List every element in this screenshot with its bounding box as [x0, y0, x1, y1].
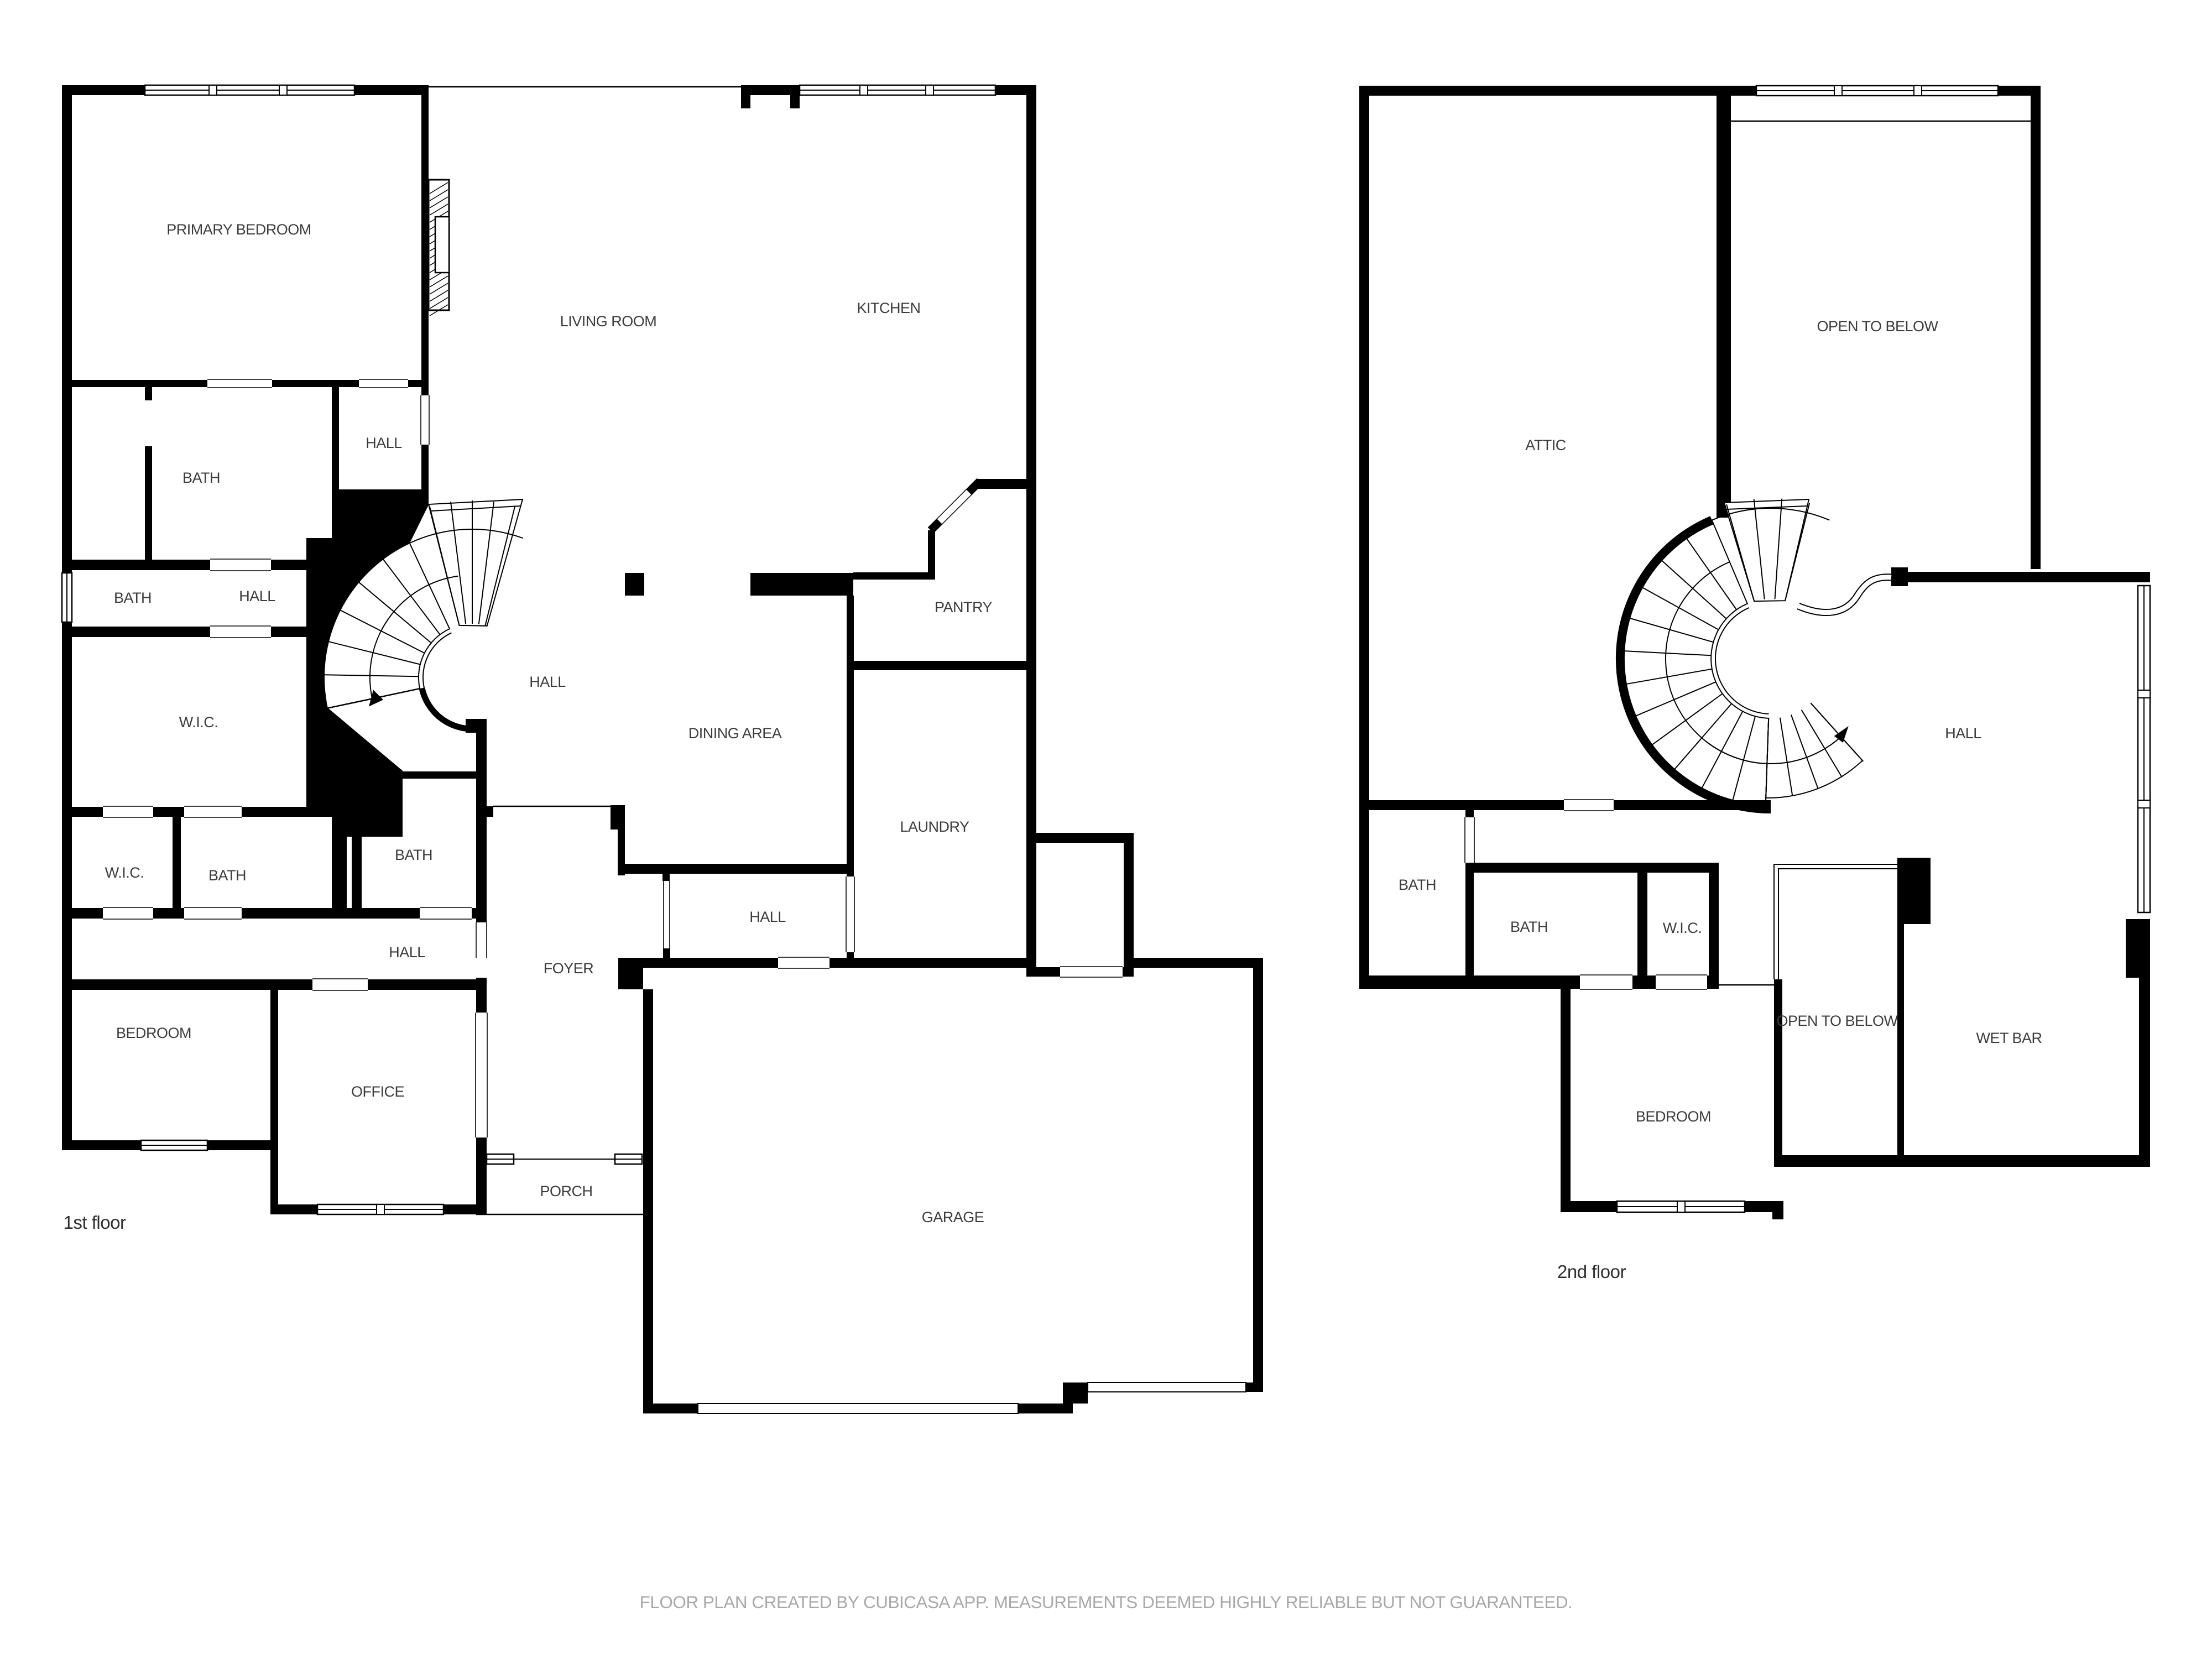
svg-text:HALL: HALL — [529, 674, 566, 690]
svg-text:LAUNDRY: LAUNDRY — [900, 818, 969, 835]
svg-text:2nd floor: 2nd floor — [1557, 1261, 1626, 1282]
svg-text:HALL: HALL — [389, 944, 425, 961]
svg-text:1st floor: 1st floor — [64, 1212, 126, 1233]
svg-text:PANTRY: PANTRY — [935, 599, 993, 615]
svg-text:LIVING ROOM: LIVING ROOM — [560, 313, 657, 330]
svg-text:W.I.C.: W.I.C. — [105, 864, 144, 881]
svg-text:BATH: BATH — [114, 589, 152, 606]
svg-text:HALL: HALL — [749, 909, 786, 925]
svg-text:OPEN TO BELOW: OPEN TO BELOW — [1776, 1013, 1898, 1029]
svg-text:PRIMARY BEDROOM: PRIMARY BEDROOM — [166, 221, 311, 238]
svg-text:GARAGE: GARAGE — [922, 1209, 984, 1225]
svg-text:OPEN TO BELOW: OPEN TO BELOW — [1817, 318, 1938, 335]
svg-text:W.I.C.: W.I.C. — [1663, 920, 1702, 936]
svg-text:WET BAR: WET BAR — [1976, 1030, 2042, 1046]
svg-text:DINING AREA: DINING AREA — [688, 725, 782, 742]
svg-text:FOYER: FOYER — [544, 960, 594, 977]
svg-text:KITCHEN: KITCHEN — [857, 300, 920, 316]
svg-text:W.I.C.: W.I.C. — [179, 714, 218, 731]
svg-text:ATTIC: ATTIC — [1525, 437, 1566, 453]
svg-text:BEDROOM: BEDROOM — [1636, 1108, 1711, 1125]
svg-text:BEDROOM: BEDROOM — [116, 1025, 191, 1041]
svg-text:PORCH: PORCH — [540, 1183, 592, 1199]
svg-text:BATH: BATH — [182, 469, 220, 486]
svg-text:OFFICE: OFFICE — [351, 1083, 404, 1100]
svg-text:HALL: HALL — [239, 588, 275, 604]
svg-text:BATH: BATH — [1399, 877, 1436, 893]
svg-text:HALL: HALL — [366, 435, 402, 451]
svg-text:BATH: BATH — [208, 867, 246, 884]
svg-text:BATH: BATH — [1510, 919, 1548, 935]
svg-text:BATH: BATH — [395, 847, 432, 863]
svg-text:HALL: HALL — [1945, 725, 1981, 742]
svg-text:FLOOR PLAN CREATED BY CUBICASA: FLOOR PLAN CREATED BY CUBICASA APP. MEAS… — [640, 1592, 1573, 1612]
